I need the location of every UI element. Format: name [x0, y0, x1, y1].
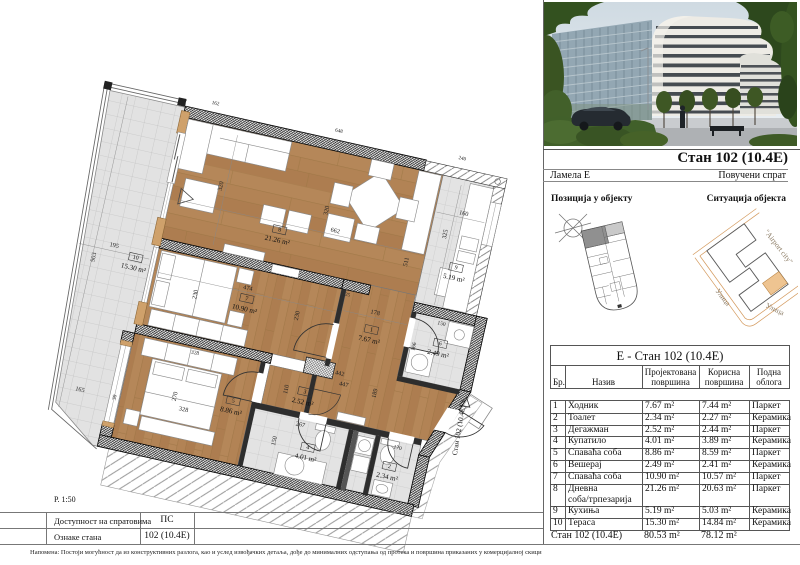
svg-text:162: 162	[211, 100, 220, 108]
svg-text:Улица: Улица	[713, 287, 733, 308]
svg-text:240: 240	[458, 155, 467, 163]
svg-text:648: 648	[334, 127, 343, 135]
